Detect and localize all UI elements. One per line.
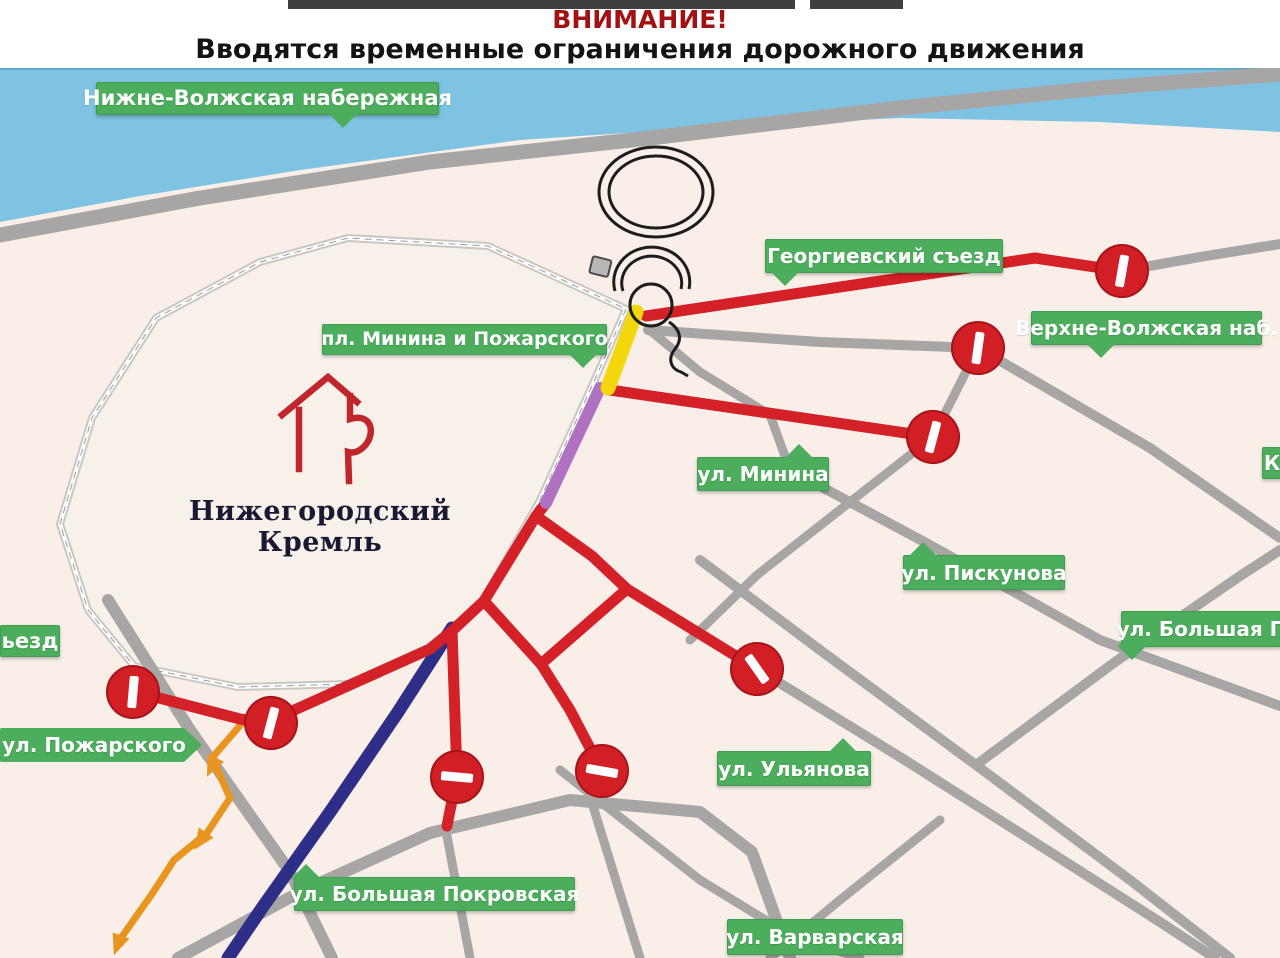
street-label-pozharskogo: ул. Пожарского bbox=[0, 728, 202, 762]
top-edge-bar bbox=[810, 0, 903, 9]
traffic-restrictions-map bbox=[0, 0, 1280, 958]
kremlin-label: Нижегородский Кремль bbox=[160, 496, 480, 558]
top-edge-bar bbox=[288, 0, 795, 9]
street-label-nizhnevolzhskaya: Нижне-Волжская набережная bbox=[96, 82, 439, 115]
label-pointer bbox=[770, 271, 800, 301]
street-label-bolshaya-pokrovskaya: ул. Большая Покровская bbox=[294, 877, 575, 911]
street-label-varvarskaya: ул. Варварская bbox=[727, 919, 903, 955]
street-label-georgievsky: Георгиевский съезд bbox=[765, 239, 1003, 273]
label-pointer bbox=[784, 429, 814, 459]
monument-square-icon bbox=[589, 256, 612, 277]
label-pointer bbox=[568, 353, 598, 383]
street-label-syezd-partial: ьезд bbox=[0, 625, 60, 657]
label-pointer bbox=[828, 723, 858, 753]
label-pointer bbox=[291, 849, 321, 879]
label-pointer bbox=[328, 113, 358, 143]
screenshot-root: ВНИМАНИЕ! Вводятся временные ограничения… bbox=[0, 0, 1280, 958]
warning-banner: ВНИМАНИЕ! Вводятся временные ограничения… bbox=[0, 0, 1280, 68]
warning-subtitle: Вводятся временные ограничения дорожного… bbox=[0, 35, 1280, 65]
street-label-pl-minina: пл. Минина и Пожарского bbox=[322, 324, 607, 355]
label-pointer bbox=[1086, 343, 1116, 373]
warning-title: ВНИМАНИЕ! bbox=[0, 6, 1280, 34]
street-label-bolshaya-pecherskaya: ул. Большая П bbox=[1121, 611, 1280, 647]
street-label-piskunova: ул. Пискунова bbox=[903, 555, 1065, 590]
label-pointer bbox=[908, 527, 938, 557]
street-label-verkhnevolzhskaya: Верхне-Волжская наб. bbox=[1031, 311, 1262, 345]
street-label-ulyanova: ул. Ульянова bbox=[717, 751, 871, 786]
label-pointer bbox=[1117, 645, 1147, 675]
street-label-k-partial: К bbox=[1262, 447, 1280, 479]
street-label-minina: ул. Минина bbox=[697, 457, 829, 491]
